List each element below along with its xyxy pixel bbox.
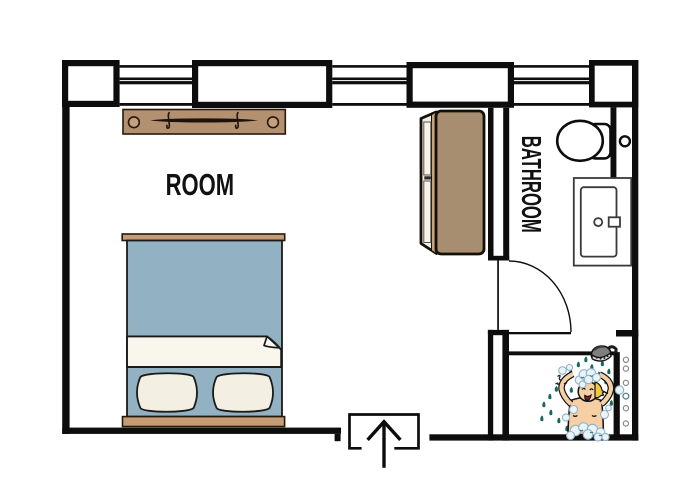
svg-text:BATHROOM: BATHROOM <box>516 136 547 233</box>
svg-text:ROOM: ROOM <box>166 168 235 202</box>
